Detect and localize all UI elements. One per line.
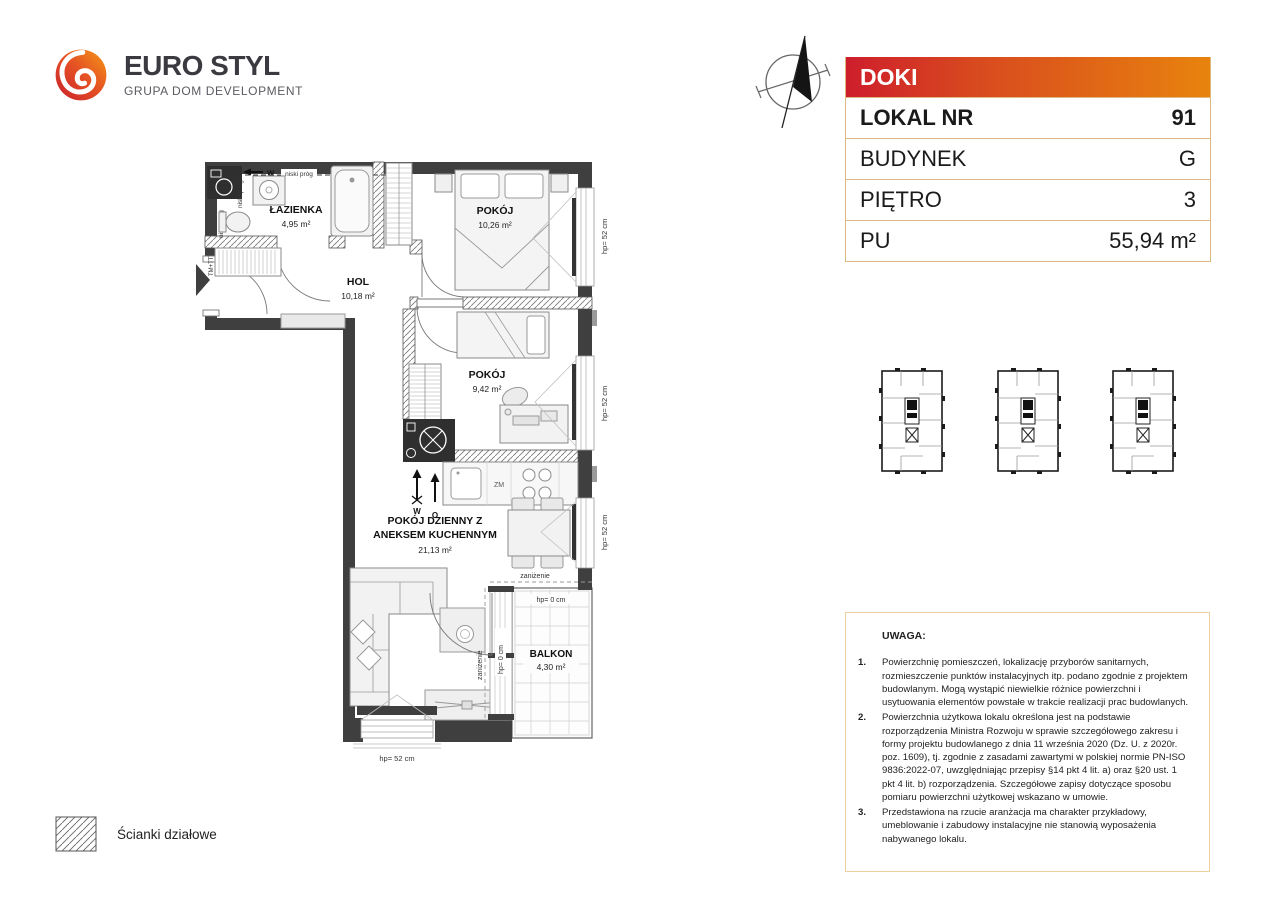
legend: Ścianki działowe (55, 816, 217, 852)
dining-set (508, 498, 570, 568)
balcony: BALKON 4,30 m² hp= 0 cm (512, 588, 592, 738)
room-area-living: 21,13 m² (418, 545, 452, 555)
annotation-zm-dishwasher: ZM (494, 482, 504, 489)
coffee-table (440, 608, 485, 652)
bathroom-door-arc (277, 248, 330, 301)
logo-brand: EURO STYL (124, 52, 303, 80)
row-label: BUDYNEK (860, 146, 966, 172)
annotation-hp52: hp= 52 cm (379, 754, 414, 763)
nightstand (435, 174, 452, 192)
logo-tagline: GRUPA DOM DEVELOPMENT (124, 84, 303, 98)
north-arrow-icon (748, 32, 838, 137)
door-leaf (417, 299, 463, 307)
table-row-pu: PU 55,94 m² (846, 220, 1210, 261)
table-row-lokal: LOKAL NR 91 (846, 97, 1210, 138)
sideboard (281, 314, 345, 328)
annotation-tm-tt: TM+TT (209, 256, 215, 276)
project-name: DOKI (846, 57, 1210, 97)
room-area-hol: 10,18 m² (341, 291, 375, 301)
bedroom2-door-arc (417, 307, 463, 353)
nightstand (551, 174, 568, 192)
toilet (219, 212, 226, 232)
row-label: PU (860, 228, 891, 254)
room-label-living-2: ANEKSEM KUCHENNYM (373, 529, 497, 541)
room-label-balkon: BALKON (530, 649, 573, 660)
annotation-hp52: hp= 52 cm (600, 386, 609, 421)
mini-plan-highlighted (995, 368, 1061, 474)
row-value: 91 (1172, 105, 1196, 131)
annotation-niski-prog: niski próg (285, 171, 313, 178)
room-area-pokoj2: 9,42 m² (473, 384, 502, 394)
note-item: 1. Powierzchnię pomieszczeń, lokalizację… (858, 656, 1191, 709)
annotation-zanizenie: zaniżenie (477, 650, 484, 680)
annotation-hp52: hp= 52 cm (600, 515, 609, 550)
eurostyl-swirl-icon (52, 46, 110, 104)
note-item: 2. Powierzchnia użytkowa lokalu określon… (858, 711, 1191, 804)
room-label-pokoj2: POKÓJ (469, 368, 506, 381)
table-row-pietro: PIĘTRO 3 (846, 179, 1210, 220)
row-value: 55,94 m² (1109, 228, 1196, 254)
unit-info-table: DOKI LOKAL NR 91 BUDYNEK G PIĘTRO 3 PU 5… (845, 57, 1211, 262)
entrance-arrow (196, 264, 210, 296)
ventilation-shaft (403, 419, 455, 462)
hall: TM+TT HOL 10,18 m² (209, 248, 375, 328)
legend-label: Ścianki działowe (117, 827, 217, 842)
room-area-lazienka: 4,95 m² (282, 219, 311, 229)
floor-plan: BALKON 4,30 m² hp= 0 cm (195, 150, 615, 780)
notes-list: 1. Powierzchnię pomieszczeń, lokalizację… (858, 656, 1191, 845)
annotation-hp0: hp= 0 cm (498, 645, 505, 674)
row-value: G (1179, 146, 1196, 172)
room-label-hol: HOL (347, 276, 370, 288)
room-area-pokoj1: 10,26 m² (478, 220, 512, 230)
row-label: LOKAL NR (860, 105, 973, 131)
row-value: 3 (1184, 187, 1196, 213)
room-label-pokoj1: POKÓJ (477, 204, 514, 217)
room-label-living-1: POKÓJ DZIENNY Z (388, 514, 483, 527)
note-item: 3. Przedstawiona na rzucie aranżacja ma … (858, 806, 1191, 846)
annotation-hp52: hp= 52 cm (600, 219, 609, 254)
room-area-balkon: 4,30 m² (537, 662, 566, 672)
mini-plan (1110, 368, 1176, 474)
annotation-hp0: hp= 0 cm (537, 597, 566, 604)
mini-plan (879, 368, 945, 474)
annotation-niski-prog: niski próg (237, 180, 244, 208)
kitchen-sink (451, 468, 481, 499)
logo: EURO STYL GRUPA DOM DEVELOPMENT (52, 46, 303, 104)
notes-title: UWAGA: (882, 629, 1191, 643)
partition-wall-swatch (55, 816, 97, 852)
sofa (350, 568, 447, 706)
annotation-zanizenie: zaniżenie (520, 573, 550, 580)
row-label: PIĘTRO (860, 187, 942, 213)
vent-symbols: W O (412, 469, 440, 520)
building-key-plans (845, 368, 1210, 474)
room-label-lazienka: ŁAZIENKA (269, 204, 322, 216)
table-row-budynek: BUDYNEK G (846, 138, 1210, 179)
floorplan-sheet: EURO STYL GRUPA DOM DEVELOPMENT DOKI LOK… (0, 0, 1273, 900)
notes-box: UWAGA: 1. Powierzchnię pomieszczeń, loka… (845, 612, 1210, 872)
